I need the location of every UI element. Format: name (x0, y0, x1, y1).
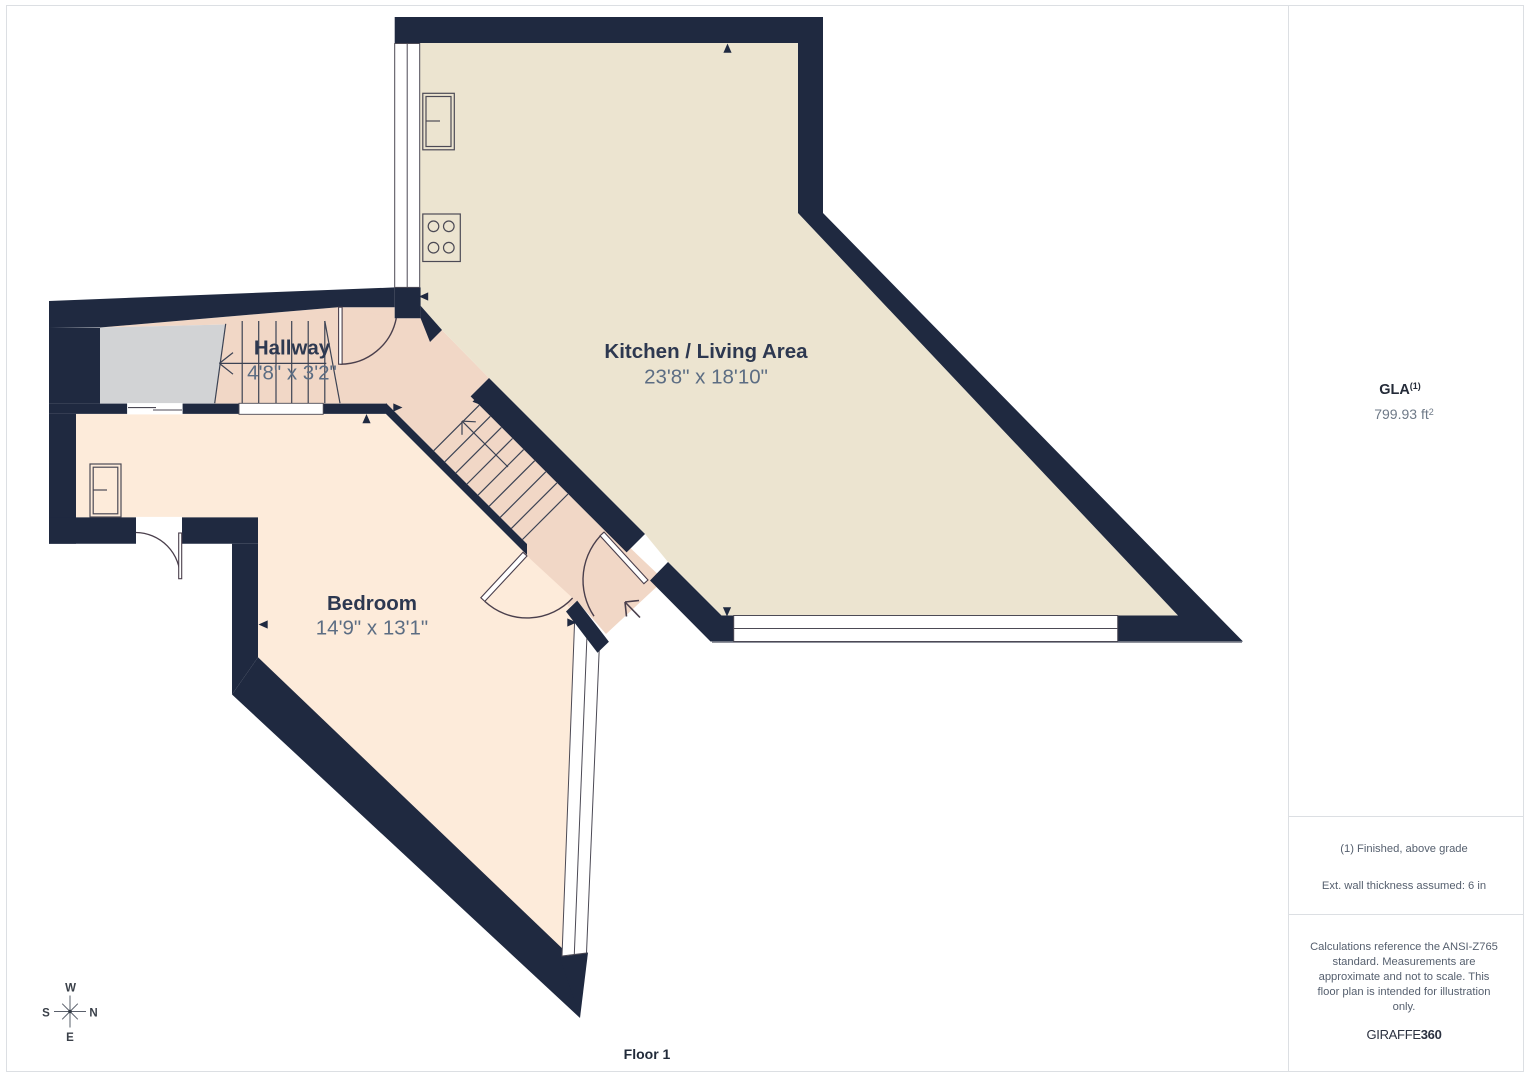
svg-text:Ext. wall thickness assumed: 6: Ext. wall thickness assumed: 6 in (1322, 880, 1486, 892)
svg-text:GIRAFFE360: GIRAFFE360 (1366, 1027, 1441, 1042)
svg-text:23'8" x 18'10": 23'8" x 18'10" (644, 366, 768, 389)
svg-text:E: E (66, 1032, 74, 1044)
svg-text:standard. Measurements are: standard. Measurements are (1332, 956, 1475, 968)
svg-text:4'8" x 3'2": 4'8" x 3'2" (247, 362, 337, 385)
svg-text:N: N (89, 1008, 97, 1020)
svg-text:Calculations reference the ANS: Calculations reference the ANSI-Z765 (1310, 941, 1498, 953)
svg-text:Bedroom: Bedroom (327, 592, 417, 615)
svg-text:only.: only. (1393, 1001, 1416, 1013)
svg-text:S: S (42, 1008, 50, 1020)
svg-text:Floor 1: Floor 1 (624, 1046, 671, 1062)
svg-text:14'9" x 13'1": 14'9" x 13'1" (316, 617, 428, 640)
svg-text:Kitchen / Living Area: Kitchen / Living Area (604, 340, 808, 363)
svg-text:Hallway: Hallway (254, 337, 331, 360)
svg-text:W: W (65, 983, 76, 995)
svg-text:floor plan is intended for ill: floor plan is intended for illustration (1318, 986, 1491, 998)
svg-text:799.93 ft2: 799.93 ft2 (1374, 406, 1434, 422)
svg-text:(1) Finished, above grade: (1) Finished, above grade (1340, 843, 1468, 855)
svg-text:approximate and not to scale.: approximate and not to scale. This (1319, 971, 1490, 983)
